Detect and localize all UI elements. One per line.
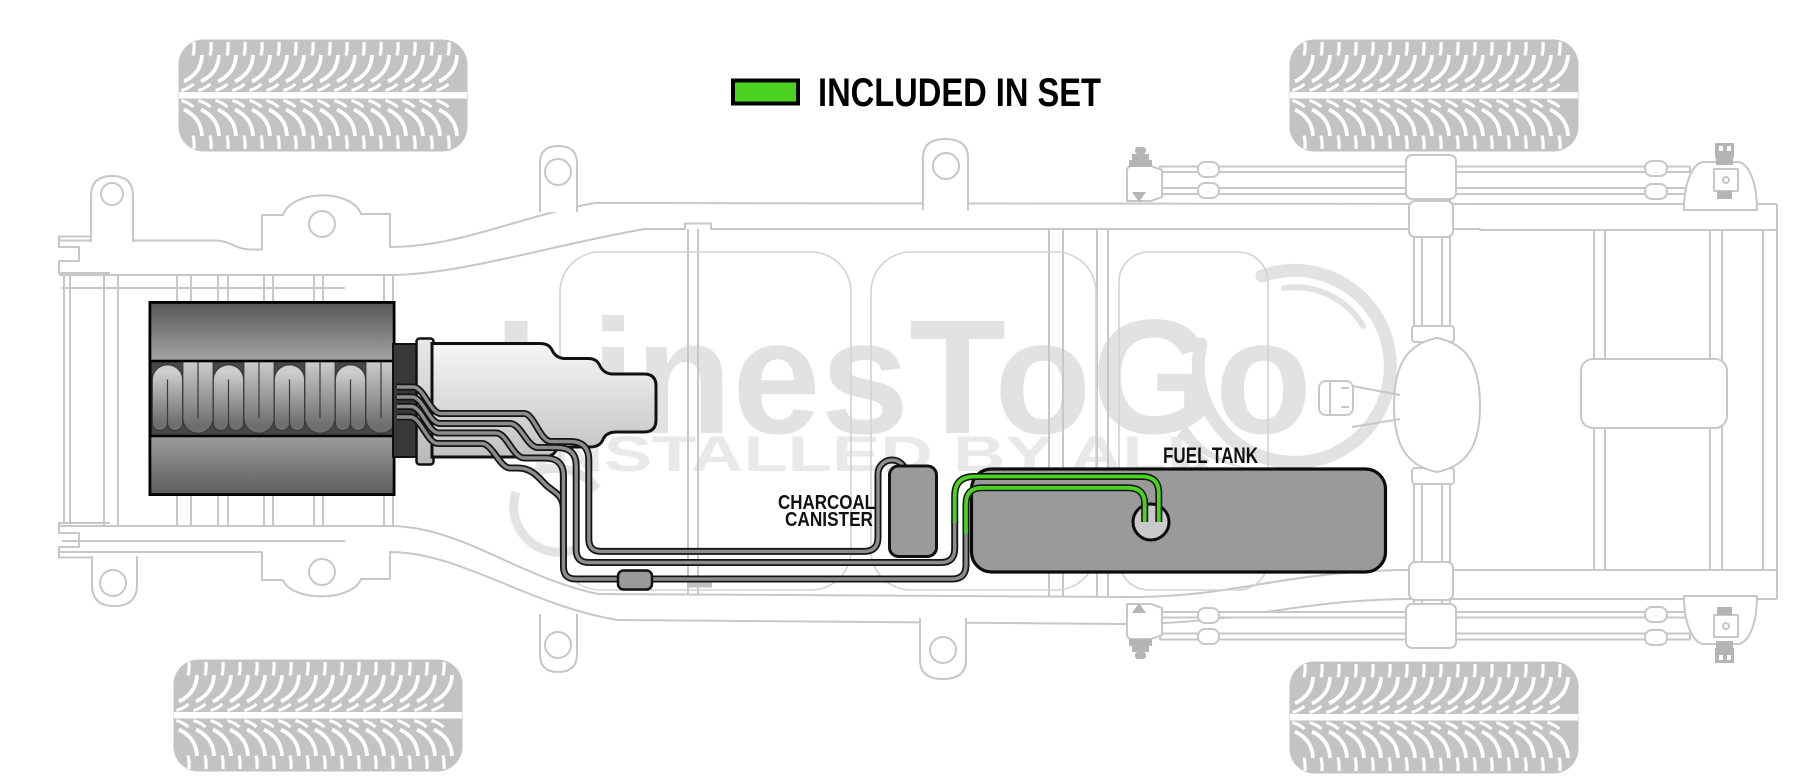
svg-text:CANISTER: CANISTER (785, 508, 873, 531)
svg-text:INCLUDED IN SET: INCLUDED IN SET (818, 71, 1101, 115)
svg-text:FUEL TANK: FUEL TANK (1163, 443, 1258, 468)
